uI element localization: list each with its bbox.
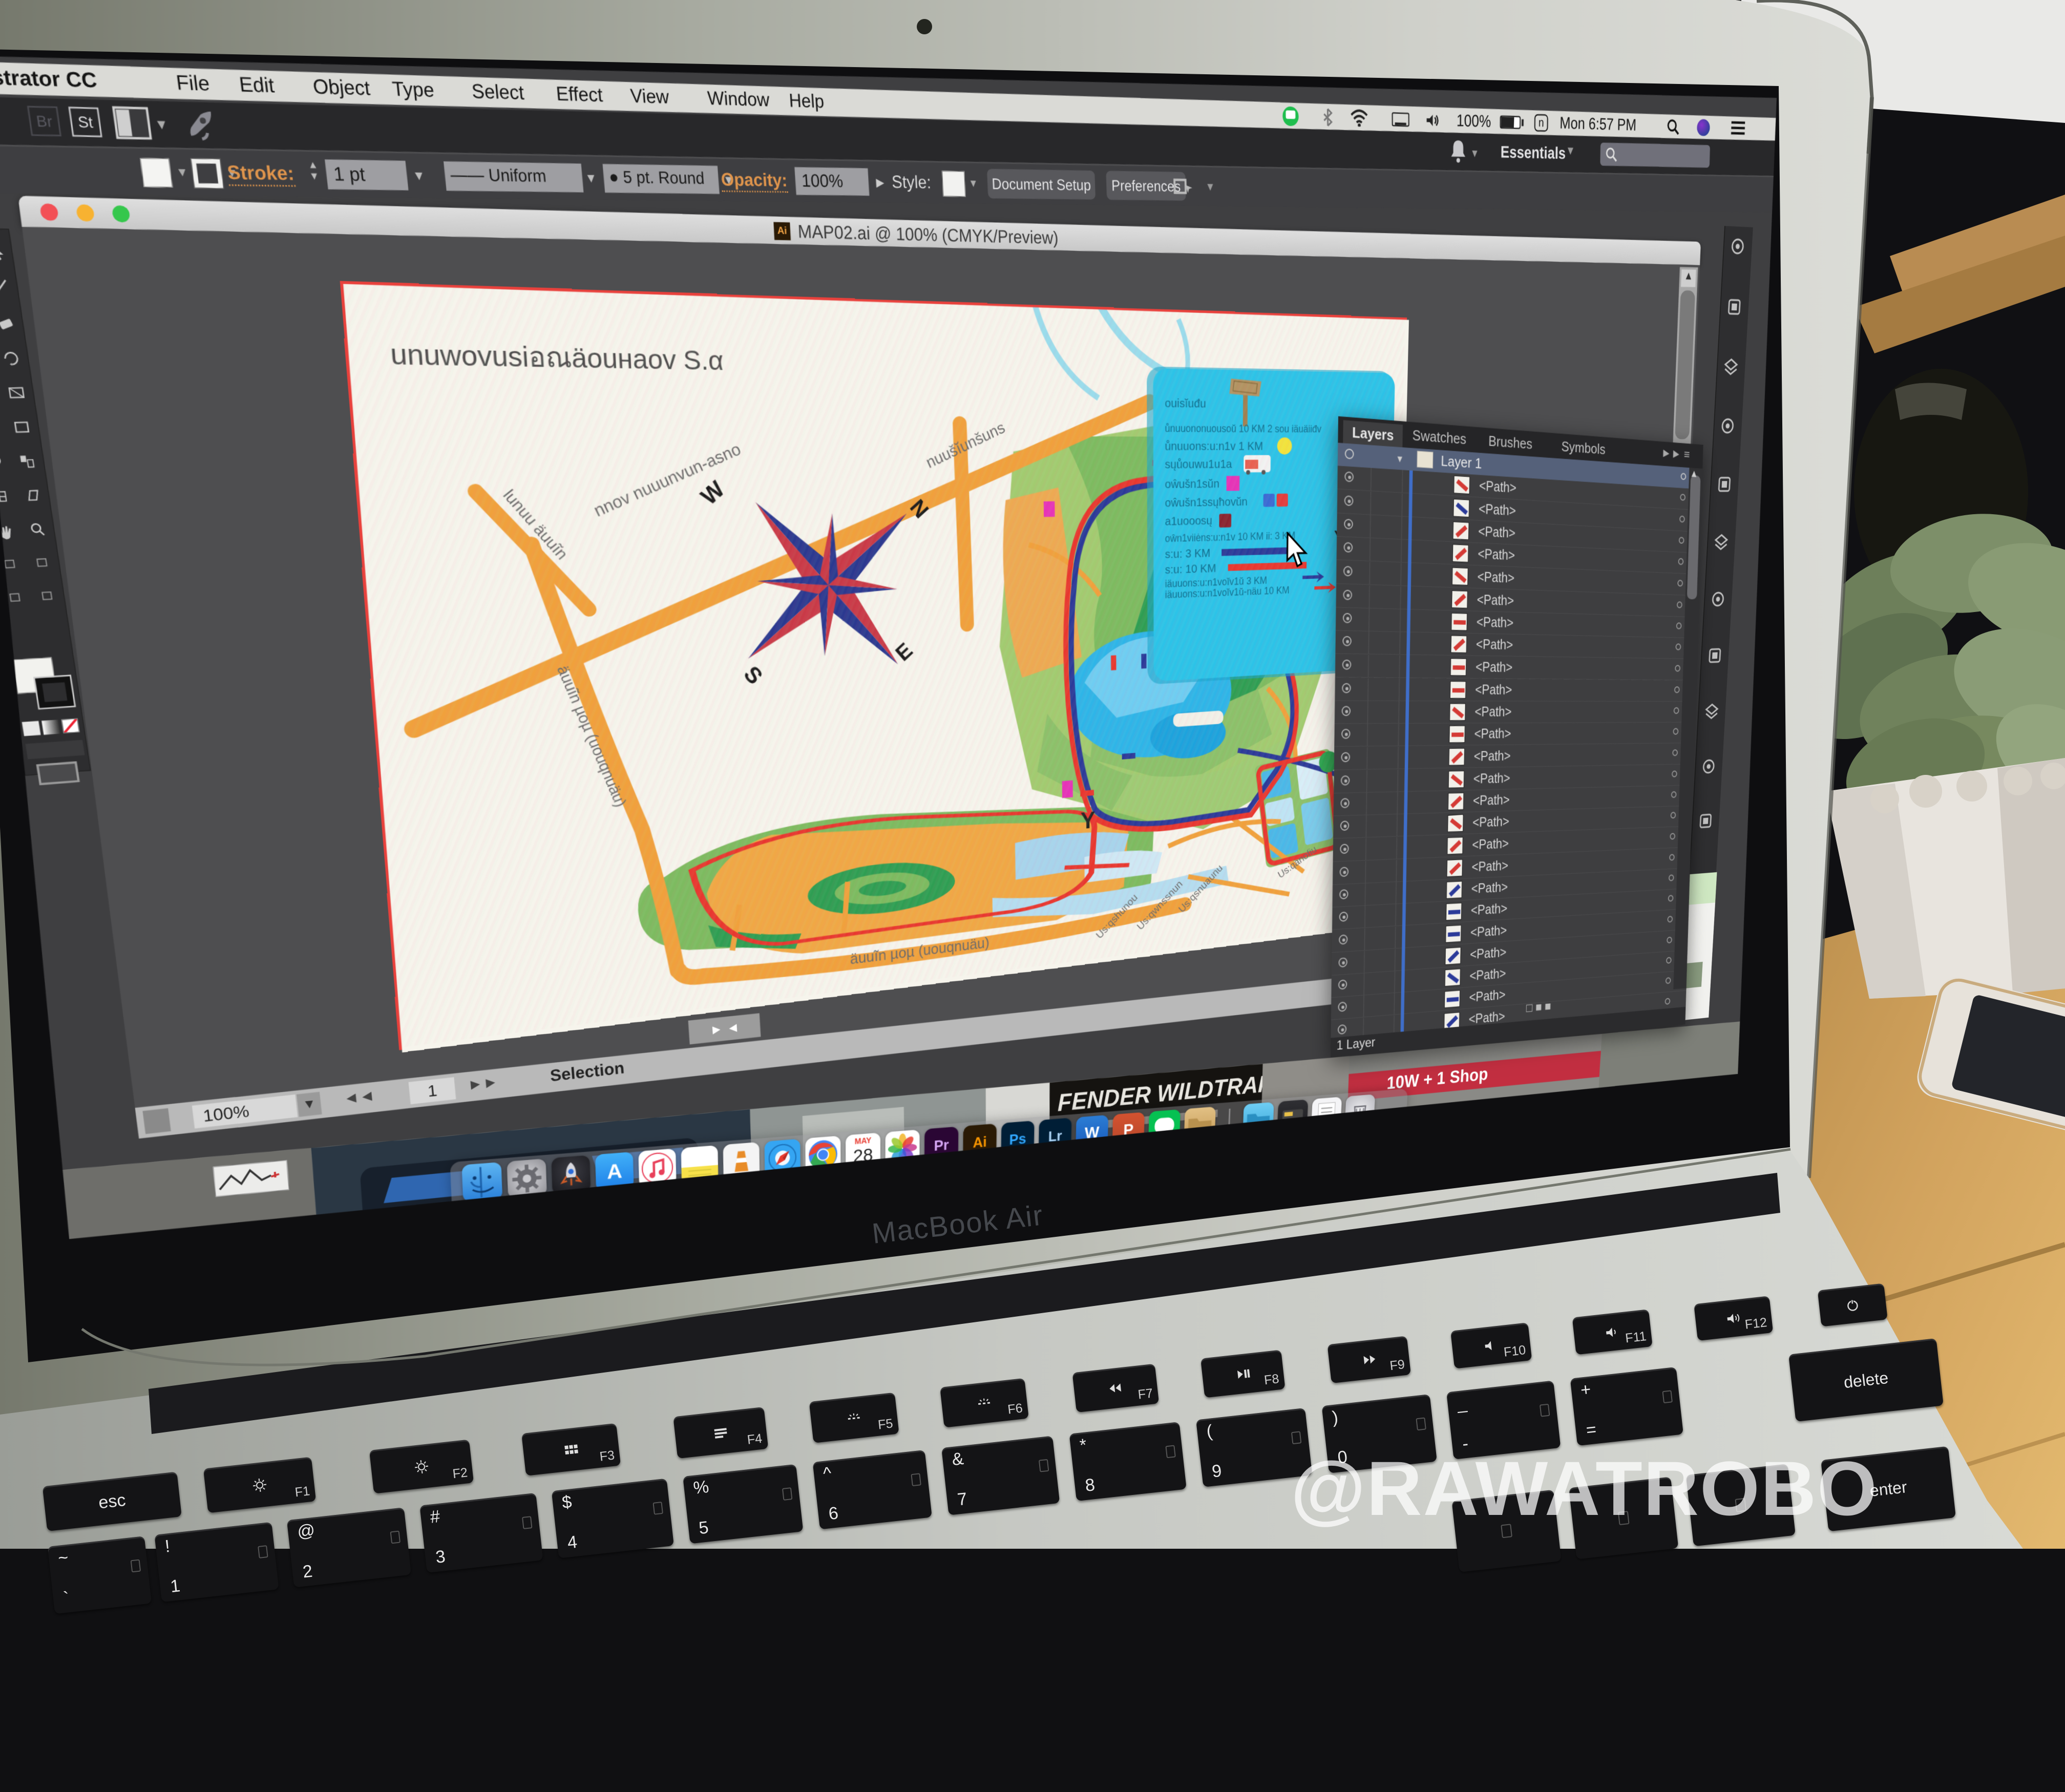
svg-text:ouisĭuđu: ouisĭuđu — [1165, 396, 1206, 410]
svg-text:oŵušn1ssųħovŭn: oŵušn1ssųħovŭn — [1165, 495, 1248, 510]
svg-text:Y: Y — [1081, 807, 1095, 834]
svg-text:ůnuuons:u:n1v 1 KM: ůnuuons:u:n1v 1 KM — [1165, 439, 1263, 453]
svg-text:A: A — [606, 1159, 622, 1183]
svg-text:s:u: 3 KM: s:u: 3 KM — [1165, 546, 1211, 561]
svg-text:a1uooosų: a1uooosų — [1165, 514, 1212, 528]
svg-text:s:u: 10 KM: s:u: 10 KM — [1165, 561, 1216, 576]
svg-text:ůnuuononuousoŭ 10 KM 2 sou iäu: ůnuuononuousoŭ 10 KM 2 sou iäuäiiđv — [1165, 423, 1321, 435]
svg-text:oŵušn1sŭn: oŵušn1sŭn — [1165, 477, 1219, 491]
svg-text:sųůouwu1u1a: sųůouwu1u1a — [1165, 457, 1232, 471]
